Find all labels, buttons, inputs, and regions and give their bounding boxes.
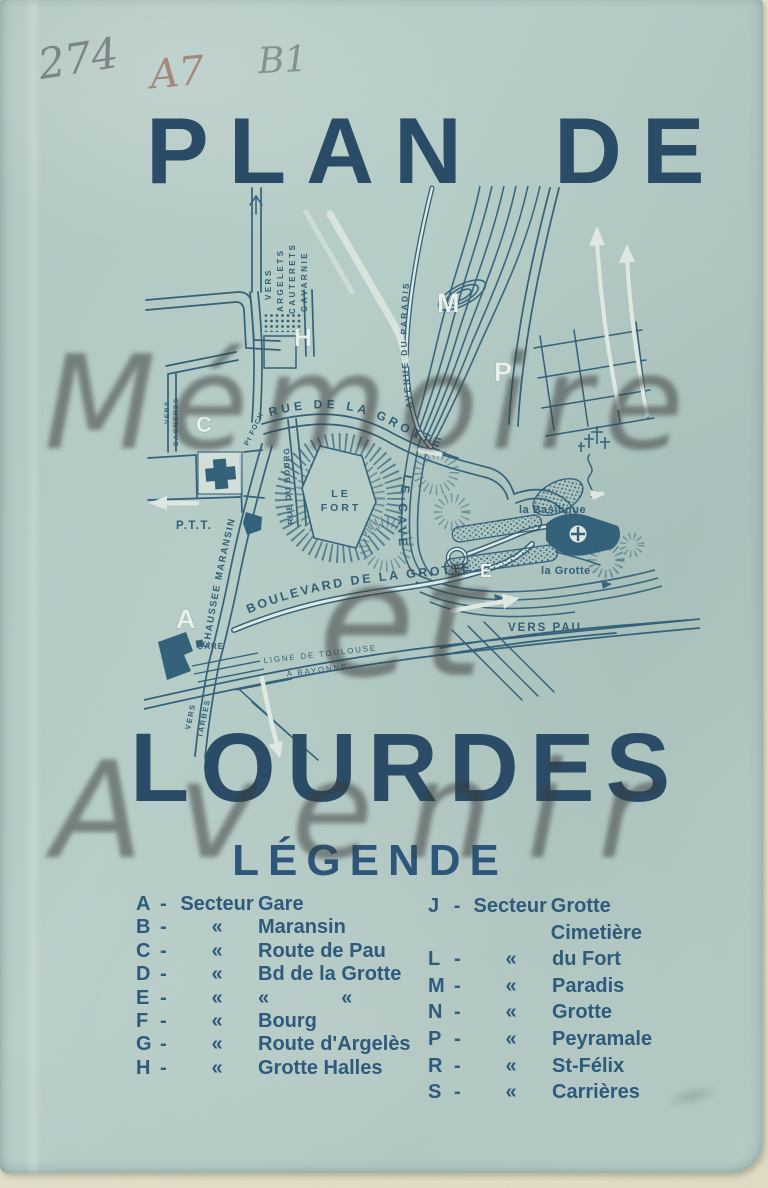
legend-letter: M (428, 973, 454, 1000)
legend-letter: S (428, 1079, 454, 1106)
legend-prefix: « (470, 1079, 552, 1106)
legend-row: D-«Bd de la Grotte (136, 963, 428, 986)
legend-label-2: « (341, 987, 352, 1010)
legend-prefix: « (176, 916, 258, 939)
legend-dash: - (160, 963, 176, 986)
legend-dash: - (454, 893, 470, 920)
legend-label: Route d'Argelès (258, 1033, 411, 1056)
legend-letter: R (428, 1053, 454, 1080)
legend-dash: - (454, 1053, 470, 1080)
legend-prefix: « (470, 946, 552, 973)
legend-row: A-SecteurGare (136, 893, 428, 916)
legend: A-SecteurGare B-«Maransin C-«Route de Pa… (136, 893, 706, 1106)
legend-prefix: « (470, 1026, 552, 1053)
legend-dash: - (160, 1010, 176, 1033)
legend-dash: - (454, 999, 470, 1026)
legend-row: S-«Carrières (428, 1079, 706, 1106)
legend-label: St-Félix (552, 1053, 624, 1080)
legend-row: C-«Route de Pau (136, 940, 428, 963)
legend-label: « (258, 987, 269, 1010)
legend-letter: H (136, 1057, 160, 1080)
legend-column-right: J-SecteurGrotte Cimetière L-«du Fort M-«… (428, 893, 706, 1106)
legend-label: Route de Pau (258, 940, 386, 963)
legend-letter: P (428, 1026, 454, 1053)
legend-dash: - (160, 893, 176, 916)
legend-row: L-«du Fort (428, 946, 706, 973)
legend-row: R-«St-Félix (428, 1053, 706, 1080)
legend-letter: B (136, 916, 160, 939)
legend-row: H-«Grotte Halles (136, 1057, 428, 1080)
legend-label: Gare (258, 893, 304, 916)
legend-letter: C (136, 940, 160, 963)
legend-row: G-«Route d'Argelès (136, 1033, 428, 1056)
handwritten-code-b1: B1 (257, 39, 308, 83)
legend-row: P-«Peyramale (428, 1026, 706, 1053)
legend-dash: - (160, 940, 176, 963)
legend-label: du Fort (552, 946, 621, 973)
legend-dash: - (160, 987, 176, 1010)
scan-background: VERS ARGELETS CAUTERETS GAVARNIE VERS BA… (0, 0, 768, 1188)
legend-prefix: « (176, 940, 258, 963)
legend-dash: - (454, 1026, 470, 1053)
legend-label: Grotte (552, 999, 612, 1026)
legend-prefix: Secteur (470, 893, 551, 920)
booklet-cover: VERS ARGELETS CAUTERETS GAVARNIE VERS BA… (0, 0, 763, 1173)
legend-label: Grotte Cimetière (551, 893, 706, 946)
legend-column-left: A-SecteurGare B-«Maransin C-«Route de Pa… (136, 893, 428, 1106)
legend-prefix: « (470, 973, 552, 1000)
legend-prefix: « (470, 1053, 552, 1080)
legend-dash: - (160, 916, 176, 939)
legend-dash: - (160, 1057, 176, 1080)
legend-prefix: « (176, 1010, 258, 1033)
legend-dash: - (454, 1079, 470, 1106)
legend-row: B-«Maransin (136, 916, 428, 939)
legend-letter: L (428, 946, 454, 973)
legend-dash: - (160, 1033, 176, 1056)
legend-row: F-«Bourg (136, 1010, 428, 1033)
legend-row: N-«Grotte (428, 999, 706, 1026)
legend-label: Carrières (552, 1079, 640, 1106)
legend-dash: - (454, 946, 470, 973)
legend-label: Paradis (552, 973, 624, 1000)
legend-prefix: « (176, 1057, 258, 1080)
legend-letter: E (136, 987, 160, 1010)
legend-prefix: « (470, 999, 552, 1026)
legend-prefix: « (176, 987, 258, 1010)
legend-prefix: Secteur (176, 893, 258, 916)
legend-row: M-«Paradis (428, 973, 706, 1000)
legend-prefix: « (176, 1033, 258, 1056)
legend-label: Bourg (258, 1010, 317, 1033)
page-title-lourdes: LOURDES (130, 719, 681, 816)
legend-letter: J (428, 893, 454, 920)
legend-letter: D (136, 963, 160, 986)
page-title-plan-de: PLAN DE (146, 104, 725, 198)
legend-prefix: « (176, 963, 258, 986)
legend-label: Bd de la Grotte (258, 963, 401, 986)
legend-heading: LÉGENDE (0, 836, 740, 886)
legend-letter: F (136, 1010, 160, 1033)
legend-label: Grotte Halles (258, 1057, 382, 1080)
legend-label: Peyramale (552, 1026, 652, 1053)
legend-letter: G (136, 1033, 160, 1056)
legend-letter: A (136, 893, 160, 916)
legend-letter: N (428, 999, 454, 1026)
legend-row: E-««« (136, 987, 428, 1010)
legend-label: Maransin (258, 916, 346, 939)
legend-row: J-SecteurGrotte Cimetière (428, 893, 706, 946)
handwritten-code-a7: A7 (148, 48, 206, 99)
legend-dash: - (454, 973, 470, 1000)
